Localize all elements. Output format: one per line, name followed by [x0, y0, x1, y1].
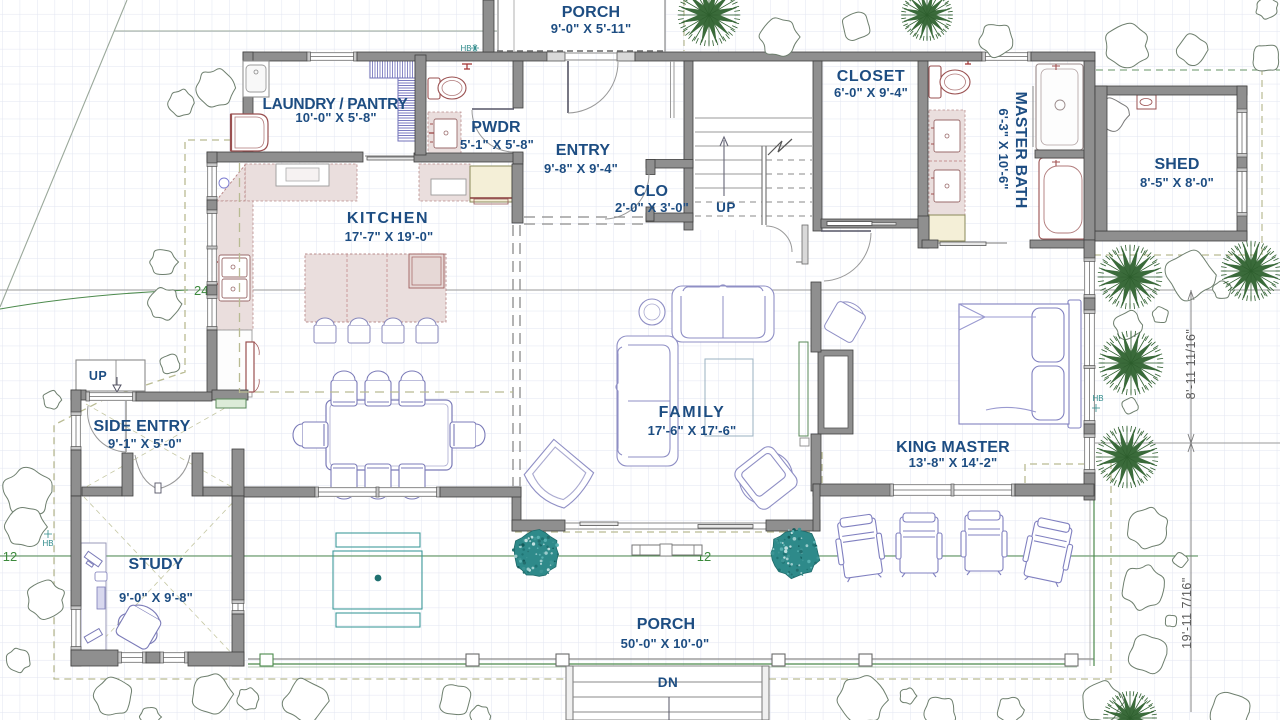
svg-text:HB: HB — [460, 44, 471, 53]
svg-text:SHED: SHED — [1154, 156, 1199, 173]
svg-text:8'-11 11/16": 8'-11 11/16" — [1184, 329, 1198, 400]
svg-text:SIDE ENTRY: SIDE ENTRY — [94, 418, 191, 435]
svg-text:9'-0" X 5'-11": 9'-0" X 5'-11" — [551, 21, 632, 36]
svg-text:CLOSET: CLOSET — [837, 68, 906, 85]
svg-text:HB: HB — [1092, 394, 1103, 403]
svg-text:6'-3" X 10'-6": 6'-3" X 10'-6" — [996, 108, 1011, 189]
svg-text:12: 12 — [3, 549, 17, 564]
svg-text:FAMILY: FAMILY — [659, 404, 726, 421]
svg-text:10'-0" X 5'-8": 10'-0" X 5'-8" — [295, 110, 376, 125]
svg-text:19'-11 7/16": 19'-11 7/16" — [1180, 577, 1194, 649]
svg-text:24: 24 — [194, 283, 208, 298]
svg-text:STUDY: STUDY — [129, 556, 184, 573]
svg-text:PORCH: PORCH — [637, 616, 696, 633]
svg-text:UP: UP — [89, 369, 107, 383]
svg-text:DN: DN — [658, 675, 679, 690]
svg-text:6'-0" X 9'-4": 6'-0" X 9'-4" — [834, 85, 908, 100]
svg-text:MASTER BATH: MASTER BATH — [1012, 92, 1029, 209]
svg-text:KITCHEN: KITCHEN — [347, 210, 429, 227]
svg-text:5'-1" X 5'-8": 5'-1" X 5'-8" — [460, 137, 534, 152]
svg-text:HB: HB — [42, 539, 53, 548]
svg-text:KING MASTER: KING MASTER — [896, 439, 1010, 456]
svg-text:17'-6" X 17'-6": 17'-6" X 17'-6" — [648, 423, 737, 438]
svg-text:PORCH: PORCH — [562, 4, 621, 21]
svg-text:9'-0" X 9'-8": 9'-0" X 9'-8" — [119, 590, 193, 605]
svg-text:9'-8" X 9'-4": 9'-8" X 9'-4" — [544, 161, 618, 176]
svg-text:PWDR: PWDR — [471, 119, 521, 136]
svg-text:ENTRY: ENTRY — [556, 142, 611, 159]
svg-text:13'-8" X 14'-2": 13'-8" X 14'-2" — [909, 455, 998, 470]
svg-text:9'-1" X 5'-0": 9'-1" X 5'-0" — [108, 436, 182, 451]
svg-text:17'-7" X 19'-0": 17'-7" X 19'-0" — [345, 229, 434, 244]
svg-text:CLO: CLO — [634, 183, 668, 200]
svg-text:UP: UP — [716, 200, 736, 215]
svg-text:2'-0" X 3'-0": 2'-0" X 3'-0" — [615, 200, 689, 215]
svg-text:8'-5" X 8'-0": 8'-5" X 8'-0" — [1140, 175, 1214, 190]
svg-text:50'-0" X 10'-0": 50'-0" X 10'-0" — [621, 636, 710, 651]
